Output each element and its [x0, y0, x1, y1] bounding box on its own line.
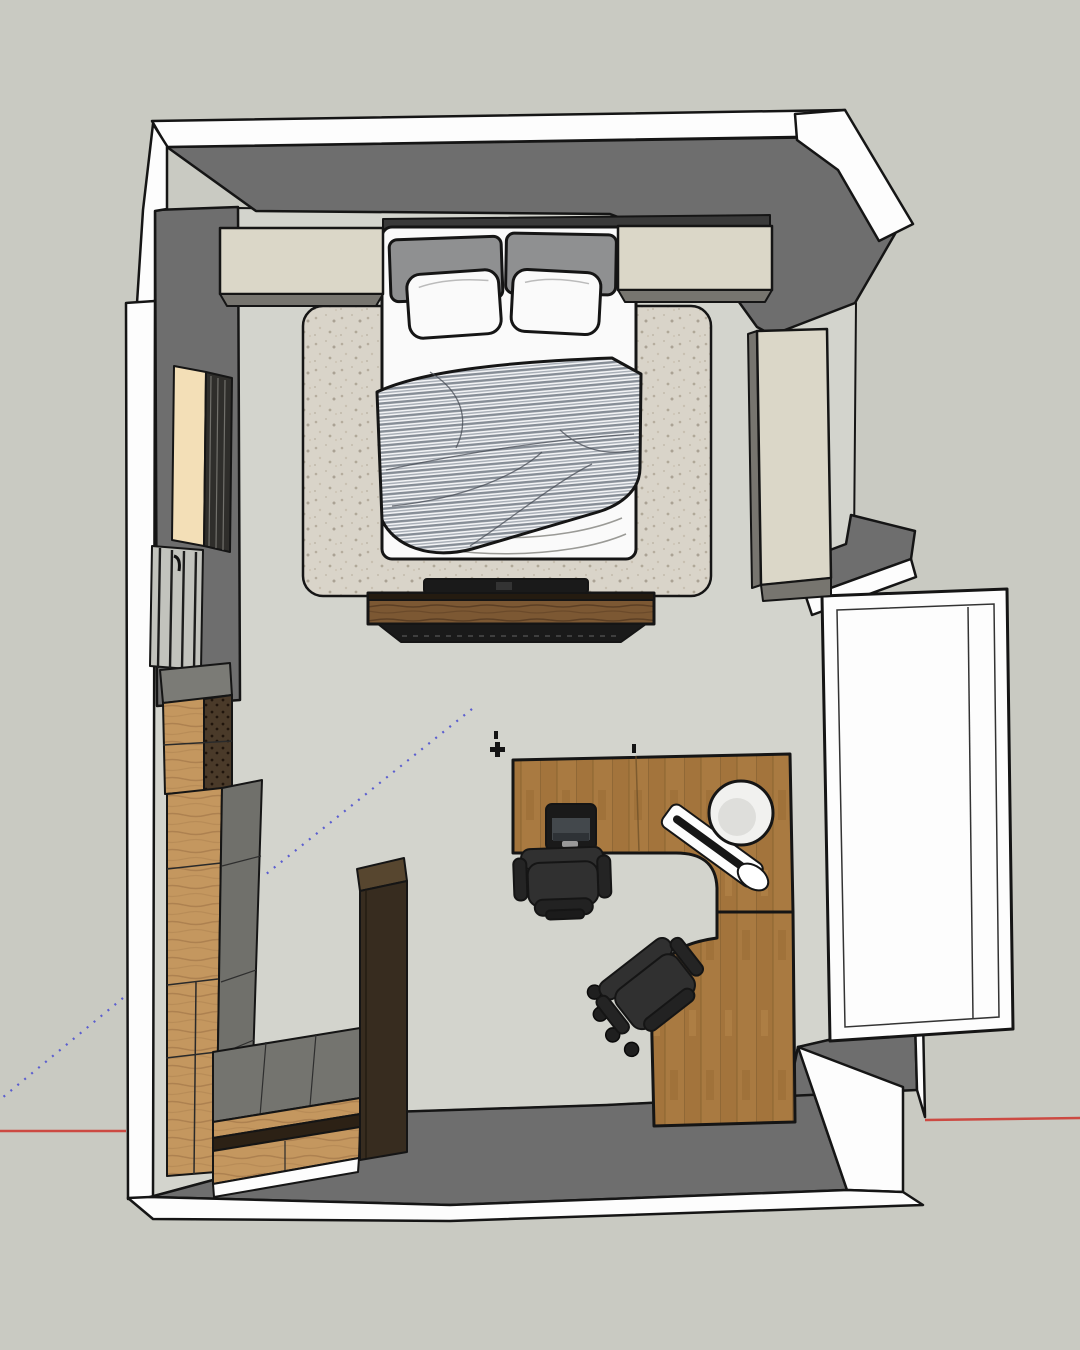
headboard-cabinet-left[interactable]	[220, 228, 383, 306]
chair-armrest	[513, 858, 527, 900]
media-bench[interactable]	[368, 593, 654, 642]
monitor-base	[553, 833, 589, 841]
tall-dark-cabinet[interactable]	[357, 858, 407, 1160]
door-leaf[interactable]	[822, 589, 1013, 1041]
tv[interactable]	[424, 579, 588, 593]
headboard-cabinet-right[interactable]	[618, 226, 772, 302]
lamp-shade-inner	[718, 798, 756, 836]
wall-cut-left-lower[interactable]	[126, 301, 155, 1199]
radiator[interactable]	[172, 366, 232, 552]
pillow-white-left[interactable]	[406, 269, 502, 339]
tv-stand	[496, 582, 512, 590]
wardrobe-perforated-door[interactable]	[204, 695, 232, 792]
chair-foot	[546, 909, 584, 919]
monitor-label	[562, 841, 578, 847]
pillow-white-right[interactable]	[510, 269, 601, 336]
wardrobe-right-wall[interactable]	[748, 329, 831, 601]
model-viewport-stage	[0, 0, 1080, 1350]
3d-viewport-canvas[interactable]	[0, 0, 1080, 1350]
double-bed[interactable]	[377, 227, 641, 559]
door-panel[interactable]	[822, 589, 1013, 1041]
drawer-bench[interactable]	[213, 1028, 360, 1197]
guide-tick-marker[interactable]	[632, 744, 636, 753]
window[interactable]	[150, 546, 203, 670]
monitor[interactable]	[546, 804, 596, 850]
